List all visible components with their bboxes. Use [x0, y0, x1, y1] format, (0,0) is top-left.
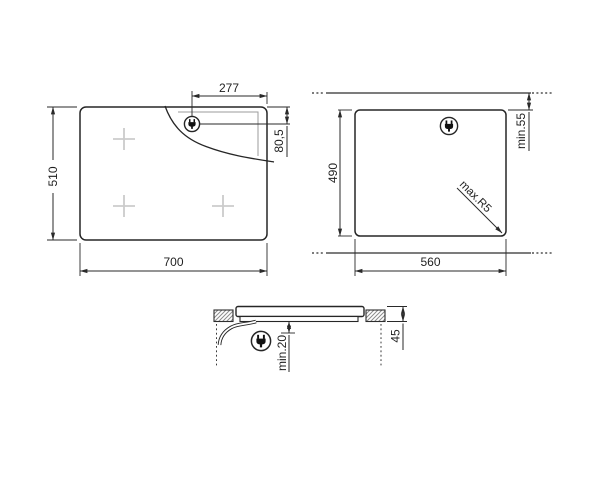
hob-glass-profile: [236, 307, 364, 317]
worktop-section-left: [214, 310, 233, 322]
dimension-bottom-clearance: min.20: [275, 322, 295, 373]
dimension-rear-clearance: min.55: [508, 93, 533, 151]
dimension-label: 80,5: [272, 129, 286, 153]
dimension-label: 277: [219, 81, 239, 95]
dimension-hob-width: 700: [80, 243, 267, 276]
installation-diagram: 277 80,5 510 700: [0, 0, 600, 481]
dimension-label: 560: [420, 255, 440, 269]
dimension-label: min.55: [514, 113, 528, 149]
cutout-plan-view: 490 560 min.55 max.R5: [312, 93, 552, 276]
dimension-hob-height: 45: [387, 307, 407, 351]
worktop-section-right: [366, 310, 385, 322]
side-section-view: 45 min.20: [214, 307, 407, 373]
dimension-cutout-depth: 490: [326, 110, 352, 236]
dimension-cutout-width: 560: [355, 239, 506, 276]
dimension-label: 45: [389, 329, 403, 343]
dimension-hob-depth: 510: [46, 107, 77, 240]
dimension-label: 700: [163, 255, 183, 269]
dimension-label: 510: [46, 166, 60, 186]
diagram-canvas: 277 80,5 510 700: [0, 0, 600, 481]
dimension-label: 490: [326, 163, 340, 183]
hob-top-view: 277 80,5 510 700: [46, 81, 290, 276]
power-plug-icon: [440, 117, 457, 134]
power-plug-icon: [184, 116, 199, 131]
power-cable: [220, 322, 257, 346]
hob-body-profile: [240, 317, 358, 322]
cutout-outline: [355, 110, 506, 236]
dimension-label: min.20: [275, 335, 289, 371]
power-plug-icon: [251, 331, 270, 350]
